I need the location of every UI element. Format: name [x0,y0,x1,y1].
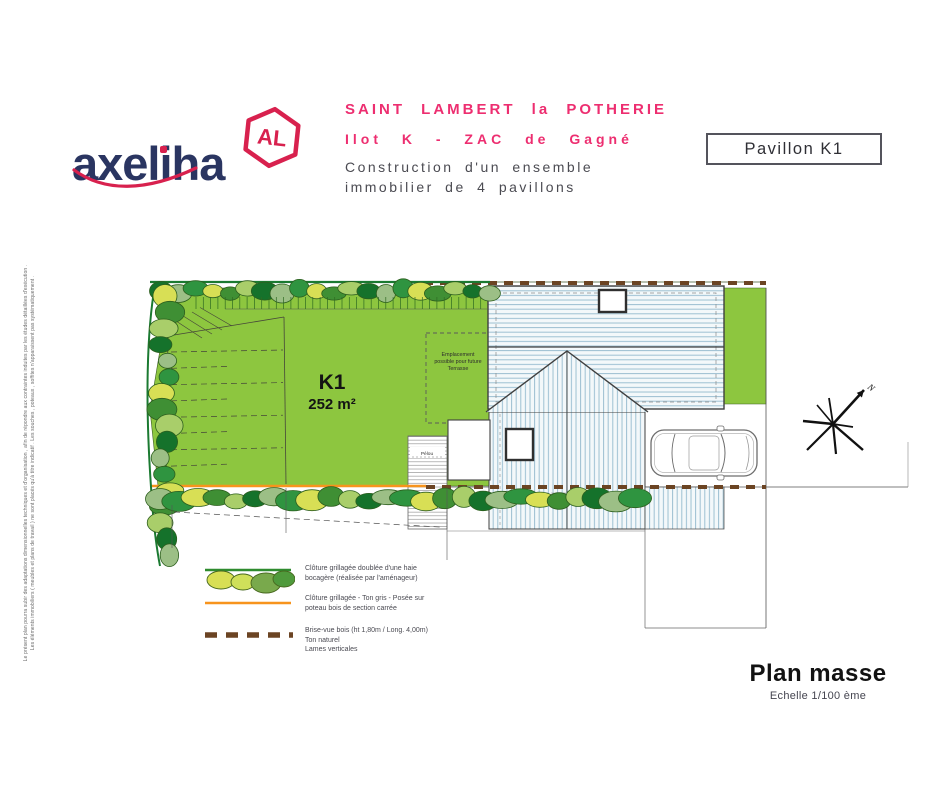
legend-fence-line2: poteau bois de section carrée [305,604,424,614]
hedge-swatch-icon [203,564,295,596]
drawing-title: Plan masse [735,660,901,688]
walkway-strip: Pélou [408,436,447,529]
walkway-label: Pélou [421,451,434,457]
north-compass-icon: N [803,381,877,454]
terrace-note-line3: Terrasse [448,366,469,372]
plan-sheet: Le présent plan pourra subir des adaptat… [0,0,933,800]
legend-screen-line1: Brise-vue bois (ht 1,80m / Long. 4,00m) [305,626,428,636]
compass-north-label: N [865,381,877,394]
car-top-view [651,426,757,480]
gable-skylight [506,429,533,460]
drawing-title-block: Plan masse Echelle 1/100 ème [735,660,901,702]
drawing-scale: Echelle 1/100 ème [735,690,901,702]
terrace-slab [448,420,490,480]
screen-swatch-icon [203,626,295,644]
legend-screen-line3: Lames verticales [305,645,428,655]
legend-fence-line1: Clôture grillagée - Ton gris - Posée sur [305,594,424,604]
legend-hedge-line1: Clôture grillagée doublée d'une haie [305,564,418,574]
fence-swatch-icon [203,594,295,612]
parcel-label: K1 [319,371,346,394]
parcel-area-label: 252 m² [308,396,356,413]
legend-hedge-line2: bocagère (réalisée par l'aménageur) [305,574,418,584]
terrace-note-line2: possible pour future [434,359,481,365]
roof-skylight [599,290,626,312]
legend-screen-line2: Ton naturel [305,636,428,646]
terrace-note-line1: Emplacement [442,352,475,358]
